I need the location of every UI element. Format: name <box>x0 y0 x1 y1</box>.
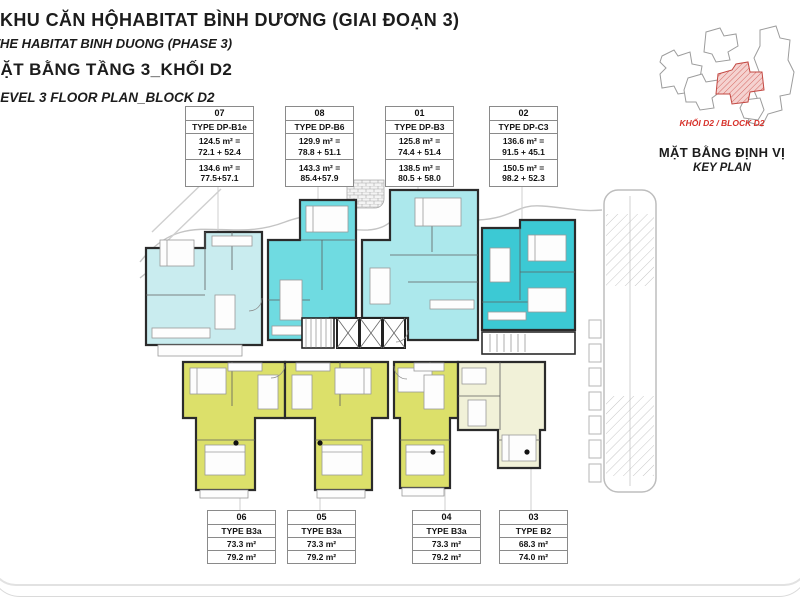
unit-label-01: 01 TYPE DP-B3 125.8 m² = 74.4 + 51.4 138… <box>385 106 454 187</box>
unit-type: TYPE B3a <box>413 525 480 538</box>
plan-title-vi: MẶT BẰNG TẦNG 3_KHỐI D2 <box>0 60 459 80</box>
road <box>589 190 656 492</box>
keyplan-title-vi: MẶT BẰNG ĐỊNH VỊ <box>648 145 796 160</box>
unit-label-02: 02 TYPE DP-C3 136.6 m² = 91.5 + 45.1 150… <box>489 106 558 187</box>
unit-type: TYPE DP-B6 <box>286 121 353 134</box>
unit-type: TYPE B3a <box>288 525 355 538</box>
unit-area: 98.2 + 52.3 <box>490 173 557 183</box>
floor-plan-page: KHU CĂN HỘHABITAT BÌNH DƯƠNG (GIAI ĐOẠN … <box>0 0 800 600</box>
unit-type: TYPE DP-C3 <box>490 121 557 134</box>
keyplan-building-outline <box>684 74 720 110</box>
keyplan-labels: KHỐI D2 / BLOCK D2 MẶT BẰNG ĐỊNH VỊ KEY … <box>648 118 796 174</box>
unit-number: 02 <box>490 107 557 121</box>
unit-area: 80.5 + 58.0 <box>386 173 453 183</box>
project-title-vi: KHU CĂN HỘHABITAT BÌNH DƯƠNG (GIAI ĐOẠN … <box>0 10 459 31</box>
unit-label-03: 03 TYPE B2 68.3 m² 74.0 m² <box>499 510 568 564</box>
unit-area: 79.2 m² <box>208 551 275 563</box>
unit-area: 79.2 m² <box>288 551 355 563</box>
unit-area: 150.5 m² = <box>490 163 557 173</box>
unit-area: 73.3 m² <box>208 538 275 551</box>
unit-area: 72.1 + 52.4 <box>186 147 253 157</box>
unit-area: 125.8 m² = <box>386 136 453 146</box>
unit-area: 77.5+57.1 <box>186 173 253 183</box>
unit-area: 68.3 m² <box>500 538 567 551</box>
unit-type: TYPE B2 <box>500 525 567 538</box>
keyplan-block-label: KHỐI D2 / BLOCK D2 <box>648 118 796 128</box>
unit-area: 136.6 m² = <box>490 136 557 146</box>
unit-type: TYPE B3a <box>208 525 275 538</box>
unit-area: 134.6 m² = <box>186 163 253 173</box>
unit-area: 91.5 + 45.1 <box>490 147 557 157</box>
unit-area: 78.8 + 51.1 <box>286 147 353 157</box>
unit-number: 05 <box>288 511 355 525</box>
unit-label-05: 05 TYPE B3a 73.3 m² 79.2 m² <box>287 510 356 564</box>
unit-number: 07 <box>186 107 253 121</box>
unit-label-04: 04 TYPE B3a 73.3 m² 79.2 m² <box>412 510 481 564</box>
unit-number: 04 <box>413 511 480 525</box>
title-block: KHU CĂN HỘHABITAT BÌNH DƯƠNG (GIAI ĐOẠN … <box>0 10 459 105</box>
unit-label-06: 06 TYPE B3a 73.3 m² 79.2 m² <box>207 510 276 564</box>
unit-area: 129.9 m² = <box>286 136 353 146</box>
unit-area: 73.3 m² <box>413 538 480 551</box>
unit-label-08: 08 TYPE DP-B6 129.9 m² = 78.8 + 51.1 143… <box>285 106 354 187</box>
unit-area: 73.3 m² <box>288 538 355 551</box>
unit-number: 08 <box>286 107 353 121</box>
service-room <box>482 332 575 354</box>
unit-area: 74.0 m² <box>500 551 567 563</box>
unit-area: 138.5 m² = <box>386 163 453 173</box>
project-title-en: THE HABITAT BINH DUONG (PHASE 3) <box>0 36 459 51</box>
column-markers <box>233 440 529 454</box>
unit-number: 06 <box>208 511 275 525</box>
unit-area: 79.2 m² <box>413 551 480 563</box>
unit-type: TYPE DP-B3 <box>386 121 453 134</box>
keyplan-title-en: KEY PLAN <box>648 162 796 174</box>
unit-label-07: 07 TYPE DP-B1e 124.5 m² = 72.1 + 52.4 13… <box>185 106 254 187</box>
unit-area: 124.5 m² = <box>186 136 253 146</box>
unit-area: 143.3 m² = <box>286 163 353 173</box>
plan-title-en: LEVEL 3 FLOOR PLAN_BLOCK D2 <box>0 90 459 105</box>
unit-type: TYPE DP-B1e <box>186 121 253 134</box>
unit-area: 74.4 + 51.4 <box>386 147 453 157</box>
unit-number: 01 <box>386 107 453 121</box>
keyplan-building-outline <box>704 28 738 62</box>
unit-area: 85.4+57.9 <box>286 173 353 183</box>
unit-number: 03 <box>500 511 567 525</box>
stairwell <box>302 318 334 348</box>
